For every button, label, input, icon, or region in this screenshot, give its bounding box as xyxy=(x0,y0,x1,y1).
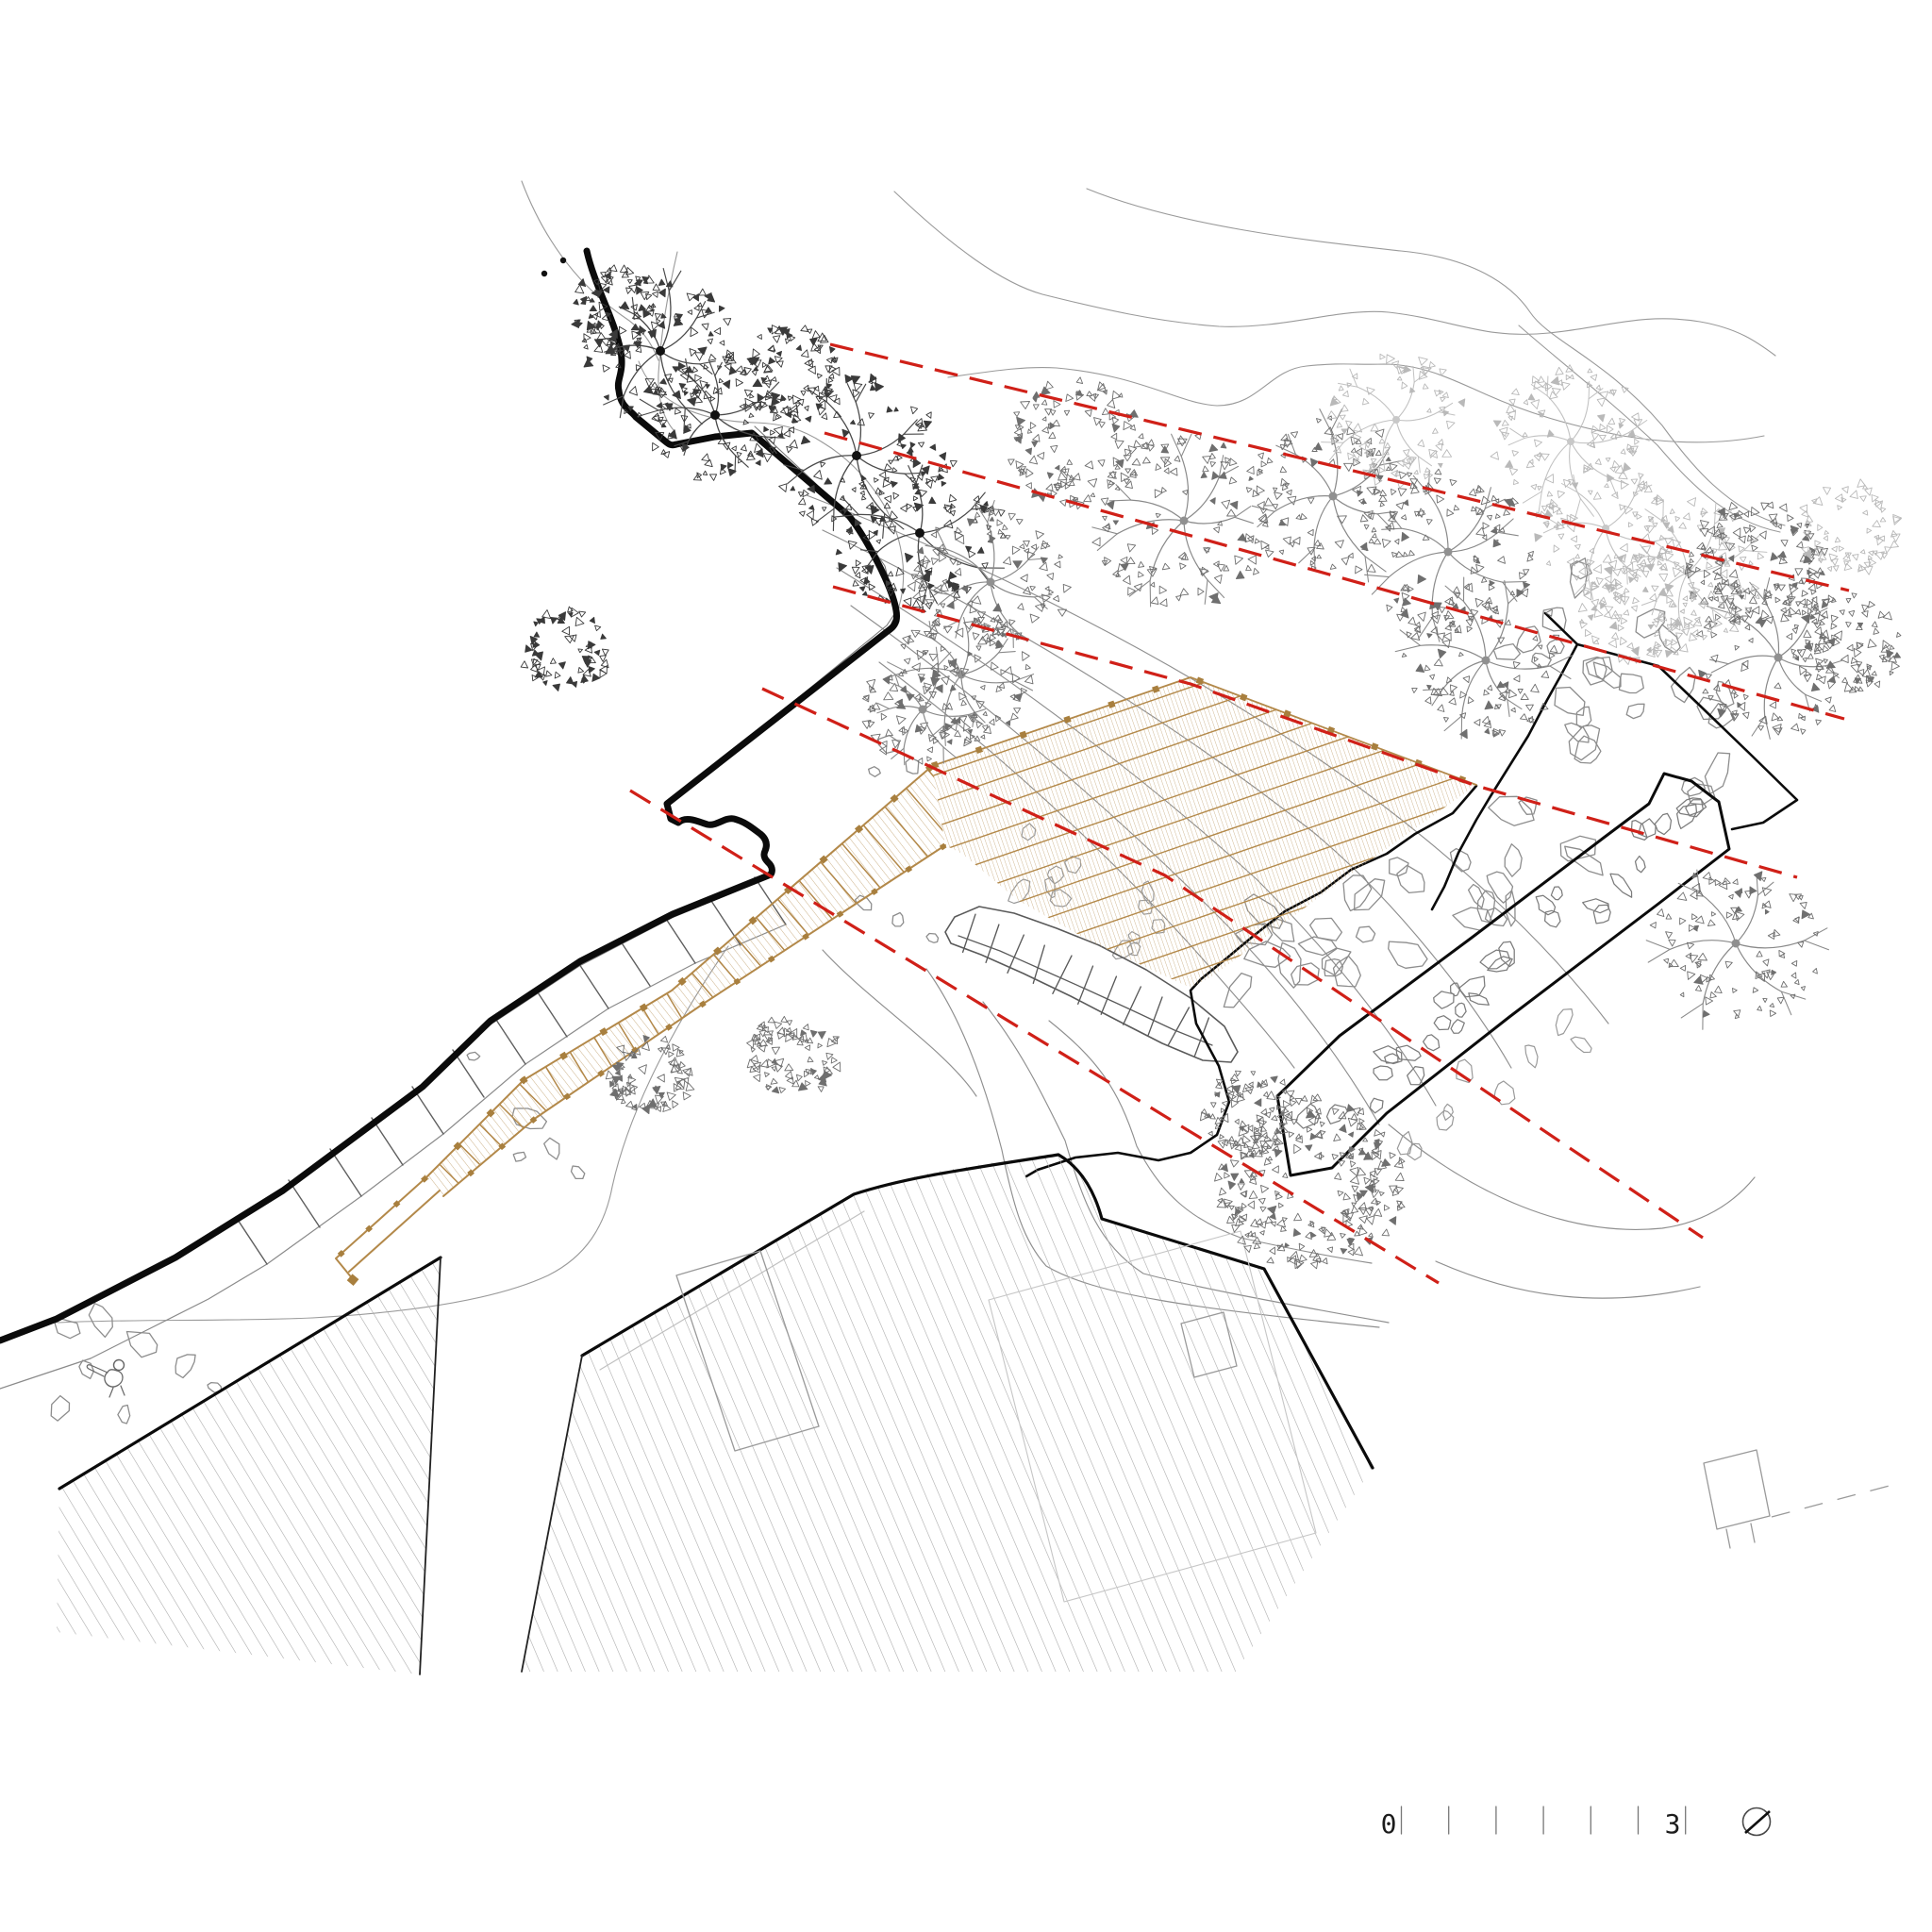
scale-start-label: 0 xyxy=(1381,1808,1397,1840)
site-plan: 0 3 xyxy=(0,0,1932,1932)
scale-bar: 0 3 xyxy=(1381,1807,1686,1840)
contour-lines xyxy=(58,181,1785,1323)
site-plan-drawing: 0 3 xyxy=(0,0,1932,1932)
quay-edge-sections xyxy=(0,426,896,1389)
person-figure xyxy=(87,1360,125,1398)
building-roofs xyxy=(57,1155,1373,1674)
scale-end-label: 3 xyxy=(1665,1808,1681,1840)
scale-ticks xyxy=(1402,1807,1686,1834)
north-arrow-icon xyxy=(1743,1808,1771,1836)
